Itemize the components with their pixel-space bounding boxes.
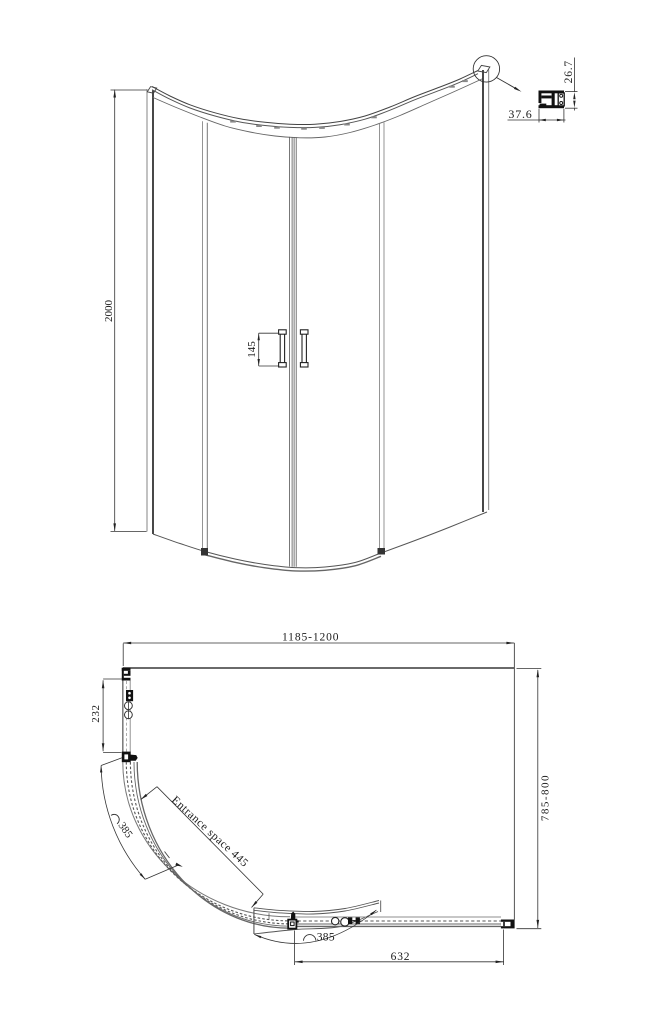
svg-text:385: 385: [317, 932, 335, 944]
svg-text:2000: 2000: [103, 300, 115, 323]
svg-text:Entrance space 445: Entrance space 445: [169, 794, 251, 870]
svg-text:1185-1200: 1185-1200: [282, 632, 340, 644]
svg-text:145: 145: [246, 341, 258, 358]
svg-text:632: 632: [391, 951, 411, 963]
svg-text:232: 232: [90, 704, 102, 722]
svg-text:785-800: 785-800: [539, 774, 551, 821]
svg-text:26.7: 26.7: [563, 60, 575, 83]
svg-text:37.6: 37.6: [508, 107, 532, 121]
